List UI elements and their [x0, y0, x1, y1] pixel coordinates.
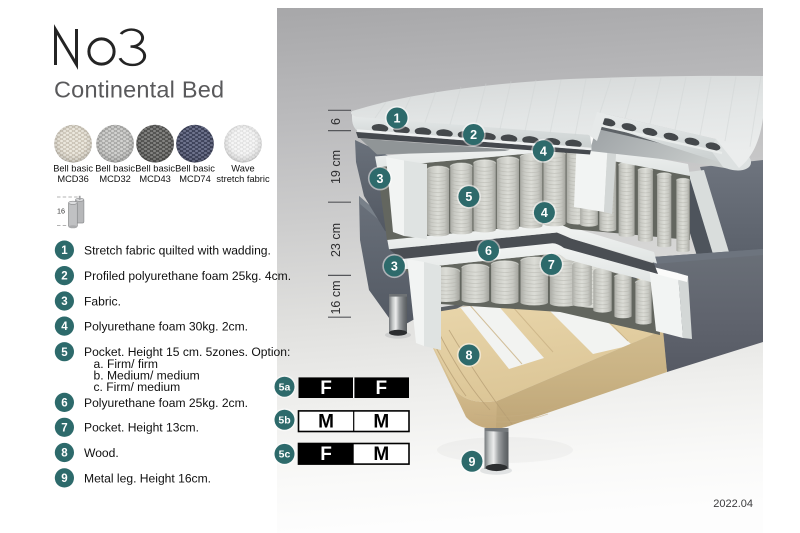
svg-text:MCD32: MCD32: [99, 174, 131, 184]
svg-text:2: 2: [61, 271, 67, 283]
svg-text:9: 9: [61, 473, 67, 485]
svg-text:stretch fabric: stretch fabric: [216, 174, 270, 184]
svg-text:6: 6: [485, 244, 492, 258]
svg-text:2022.04: 2022.04: [713, 498, 753, 510]
svg-text:c. Firm/ medium: c. Firm/ medium: [94, 380, 181, 394]
svg-text:Pocket. Height 13cm.: Pocket. Height 13cm.: [84, 421, 199, 435]
svg-text:Polyurethane foam 30kg. 2cm.: Polyurethane foam 30kg. 2cm.: [84, 320, 248, 334]
svg-text:MCD43: MCD43: [139, 174, 171, 184]
svg-text:Metal leg. Height 16cm.: Metal leg. Height 16cm.: [84, 471, 211, 485]
svg-text:7: 7: [548, 258, 555, 272]
svg-text:6: 6: [61, 398, 67, 410]
svg-text:Stretch fabric quilted with wa: Stretch fabric quilted with wadding.: [84, 244, 271, 258]
svg-text:3: 3: [61, 296, 67, 308]
svg-text:Bell basic: Bell basic: [53, 164, 93, 174]
svg-text:5b: 5b: [278, 415, 290, 427]
svg-text:F: F: [376, 378, 388, 399]
svg-text:5a: 5a: [279, 381, 291, 393]
svg-text:8: 8: [61, 448, 68, 460]
svg-text:8: 8: [466, 349, 473, 363]
svg-text:Profiled polyurethane foam 25k: Profiled polyurethane foam 25kg. 4cm.: [84, 269, 291, 283]
svg-text:6: 6: [329, 118, 343, 125]
svg-text:MCD36: MCD36: [57, 174, 89, 184]
svg-text:7: 7: [61, 422, 67, 434]
svg-text:Wave: Wave: [231, 164, 254, 174]
svg-text:4: 4: [541, 206, 548, 220]
svg-text:Continental Bed: Continental Bed: [54, 77, 224, 103]
svg-text:Bell basic: Bell basic: [95, 164, 135, 174]
svg-text:2: 2: [470, 128, 477, 142]
svg-text:F: F: [320, 378, 332, 399]
svg-text:Polyurethane foam 25kg. 2cm.: Polyurethane foam 25kg. 2cm.: [84, 396, 248, 410]
svg-text:23 cm: 23 cm: [329, 223, 343, 257]
svg-text:3: 3: [377, 172, 384, 186]
svg-text:5: 5: [465, 190, 472, 204]
svg-text:Bell basic: Bell basic: [175, 164, 215, 174]
svg-text:4: 4: [61, 321, 68, 333]
svg-text:Fabric.: Fabric.: [84, 294, 121, 308]
svg-text:MCD74: MCD74: [179, 174, 211, 184]
svg-text:M: M: [318, 411, 334, 432]
svg-text:F: F: [320, 444, 332, 465]
svg-text:3: 3: [391, 260, 398, 274]
svg-text:Bell basic: Bell basic: [135, 164, 175, 174]
svg-text:M: M: [373, 444, 389, 465]
svg-text:16 cm: 16 cm: [329, 280, 343, 314]
svg-text:1: 1: [394, 112, 401, 126]
svg-text:5c: 5c: [279, 449, 291, 461]
svg-text:4: 4: [540, 144, 547, 158]
svg-text:1: 1: [61, 245, 68, 257]
svg-text:9: 9: [469, 455, 476, 469]
svg-text:M: M: [373, 411, 389, 432]
svg-text:Wood.: Wood.: [84, 446, 119, 460]
svg-text:5: 5: [61, 347, 68, 359]
svg-text:16: 16: [57, 207, 65, 216]
svg-text:19 cm: 19 cm: [329, 150, 343, 184]
